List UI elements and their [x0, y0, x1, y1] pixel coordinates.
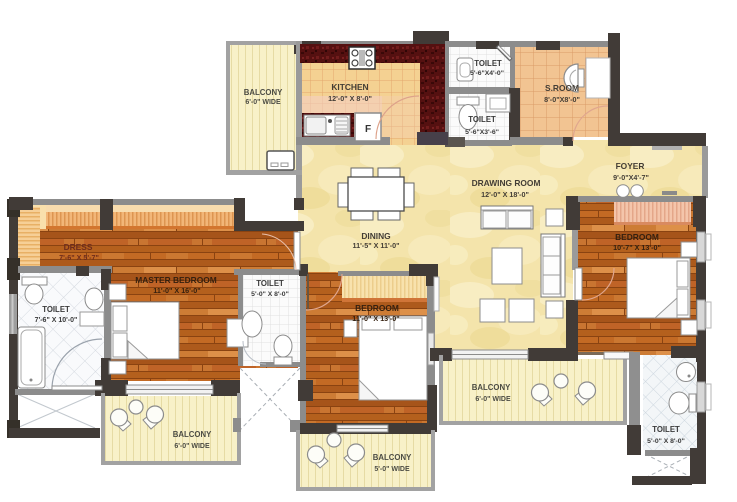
svg-text:6'-0" WIDE: 6'-0" WIDE: [174, 443, 210, 450]
svg-text:7'-6" X 10'-0": 7'-6" X 10'-0": [35, 317, 78, 324]
svg-text:BEDROOM: BEDROOM: [355, 303, 399, 313]
svg-text:5'-6"X4'-0": 5'-6"X4'-0": [470, 70, 504, 77]
svg-text:5'-6"X3'-6": 5'-6"X3'-6": [465, 129, 499, 136]
svg-text:BALCONY: BALCONY: [373, 453, 412, 462]
svg-text:12'-0" X 18'-0": 12'-0" X 18'-0": [481, 190, 529, 199]
svg-text:6'-0" WIDE: 6'-0" WIDE: [475, 396, 511, 403]
svg-text:11'-0" X 13'-0": 11'-0" X 13'-0": [352, 314, 399, 323]
svg-text:TOILET: TOILET: [468, 115, 496, 124]
svg-text:F: F: [365, 124, 371, 135]
svg-text:BEDROOM: BEDROOM: [615, 232, 659, 242]
svg-text:8'-0"X8'-0": 8'-0"X8'-0": [544, 95, 580, 104]
svg-text:12'-0" X 8'-0": 12'-0" X 8'-0": [328, 94, 372, 103]
svg-text:5'-0" X 8'-0": 5'-0" X 8'-0": [647, 438, 685, 445]
svg-text:FOYER: FOYER: [616, 161, 645, 171]
svg-text:11'-0" X 16'-0": 11'-0" X 16'-0": [153, 286, 200, 295]
svg-text:BALCONY: BALCONY: [472, 383, 511, 392]
svg-text:5'-0" X 8'-0": 5'-0" X 8'-0": [251, 291, 289, 298]
svg-text:9'-0"X4'-7": 9'-0"X4'-7": [613, 173, 649, 182]
svg-text:TOILET: TOILET: [42, 305, 70, 314]
svg-text:BALCONY: BALCONY: [244, 88, 283, 97]
svg-text:S.ROOM: S.ROOM: [545, 83, 579, 93]
svg-text:7'-6" X 5'-7": 7'-6" X 5'-7": [59, 253, 99, 262]
svg-text:KITCHEN: KITCHEN: [331, 82, 368, 92]
svg-text:DRESS: DRESS: [64, 242, 93, 252]
svg-text:BALCONY: BALCONY: [173, 430, 212, 439]
svg-text:11'-5" X 11'-0": 11'-5" X 11'-0": [353, 241, 400, 250]
svg-text:DINING: DINING: [361, 231, 390, 241]
svg-text:TOILET: TOILET: [474, 59, 502, 68]
svg-text:5'-0" WIDE: 5'-0" WIDE: [374, 466, 410, 473]
svg-text:DRAWING ROOM: DRAWING ROOM: [472, 178, 541, 188]
svg-text:10'-7" X 13'-0": 10'-7" X 13'-0": [613, 243, 661, 252]
svg-text:MASTER BEDROOM: MASTER BEDROOM: [135, 275, 216, 285]
svg-text:TOILET: TOILET: [652, 425, 680, 434]
svg-text:6'-0" WIDE: 6'-0" WIDE: [245, 99, 281, 106]
svg-text:TOILET: TOILET: [256, 279, 284, 288]
